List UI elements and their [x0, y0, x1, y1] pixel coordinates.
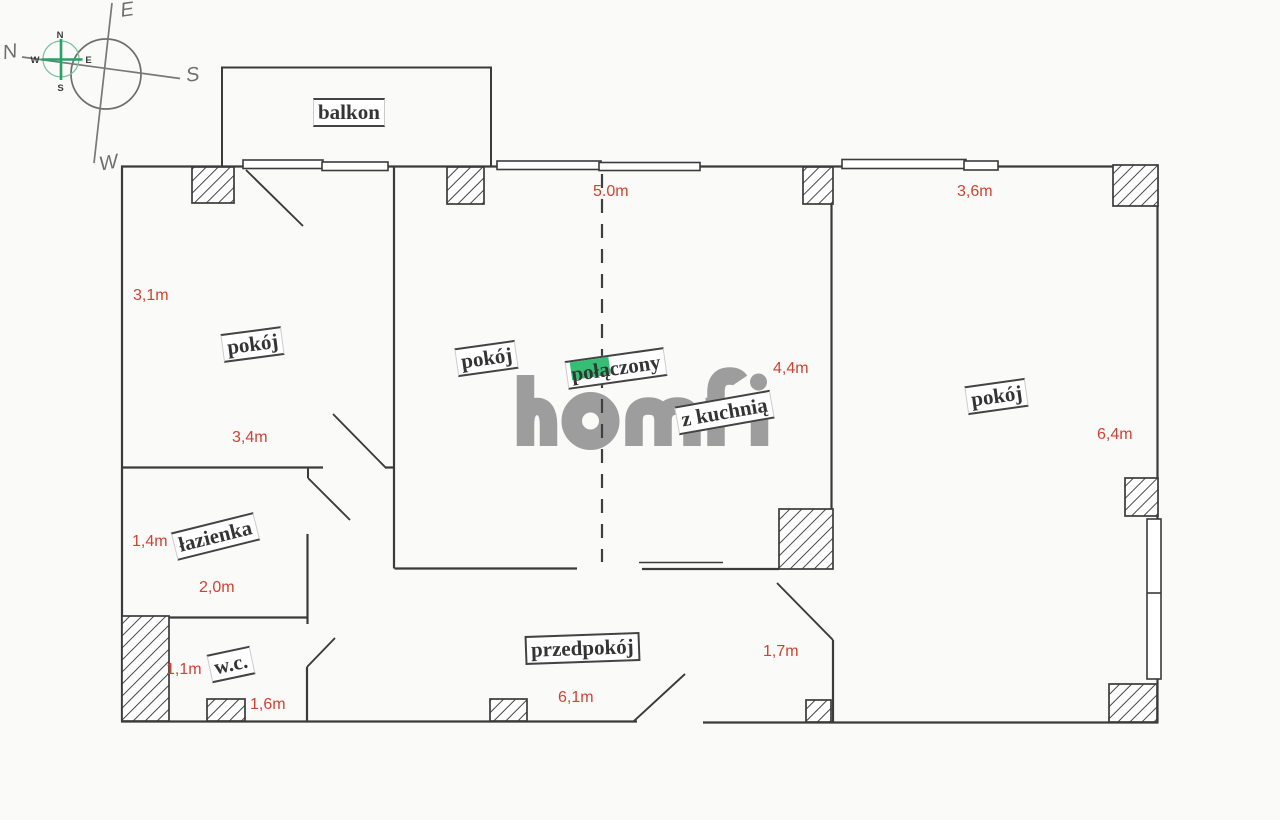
svg-text:S: S — [185, 63, 202, 87]
svg-text:S: S — [57, 83, 63, 94]
svg-text:W: W — [31, 55, 40, 66]
svg-text:E: E — [85, 55, 91, 66]
svg-text:N: N — [1, 40, 20, 64]
svg-text:E: E — [119, 0, 136, 22]
svg-text:N: N — [57, 30, 64, 41]
svg-text:W: W — [97, 150, 122, 175]
